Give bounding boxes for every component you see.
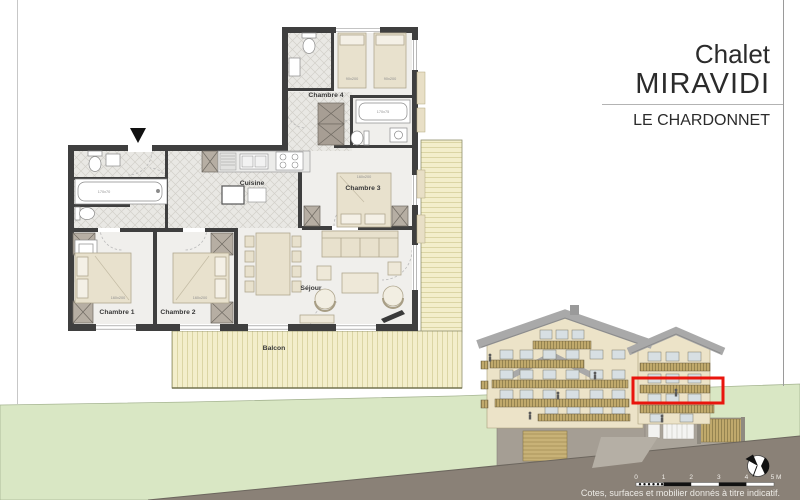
title-block: Chalet MIRAVIDI <box>635 40 770 100</box>
dim-bed2: 160x200 <box>193 296 208 300</box>
chimney <box>570 305 579 315</box>
dim-bed3: 160x200 <box>357 175 372 179</box>
scale-tick: 0 <box>634 474 638 481</box>
label-balcon: Balcon <box>263 345 286 352</box>
balcony-rail <box>640 363 714 413</box>
dim-bathtub-main: 170x70 <box>98 190 110 194</box>
floor-plan: Chambre 1 Chambre 2 Chambre 3 Chambre 4 … <box>68 27 462 388</box>
label-chambre2: Chambre 2 <box>160 309 195 316</box>
dim-bed1: 160x200 <box>111 296 126 300</box>
scale-tick: 3 <box>717 474 721 481</box>
entrance-door <box>648 424 660 438</box>
label-cuisine: Cuisine <box>240 180 265 187</box>
page-border-right <box>783 0 784 386</box>
page-border-left <box>17 0 18 404</box>
scale-tick: 1 <box>662 474 666 481</box>
dim-bed4a: 90x200 <box>346 77 358 81</box>
chalet-prefix: Chalet <box>635 40 770 68</box>
entry-arrow-icon <box>130 128 146 143</box>
tv-console <box>300 315 334 323</box>
label-sejour: Séjour <box>300 285 322 292</box>
label-chambre4: Chambre 4 <box>308 92 343 99</box>
footer-disclaimer: Cotes, surfaces et mobilier donnés à tit… <box>581 488 780 498</box>
scale-tick: 5 M <box>771 474 782 481</box>
garage-door <box>523 431 567 461</box>
residence-name: LE CHARDONNET <box>633 112 770 130</box>
scale-tick: 2 <box>689 474 693 481</box>
title-divider <box>602 104 783 105</box>
chalet-name: MIRAVIDI <box>635 68 770 100</box>
bed-chambre3 <box>337 173 391 227</box>
scale-tick: 4 <box>745 474 749 481</box>
dim-bed4b: 90x200 <box>384 77 396 81</box>
plan-sheet: Chambre 1 Chambre 2 Chambre 3 Chambre 4 … <box>0 0 800 500</box>
label-chambre3: Chambre 3 <box>345 185 380 192</box>
entrance-glazing <box>663 423 694 439</box>
dim-bathtub-ch4: 170x75 <box>377 110 389 114</box>
label-chambre1: Chambre 1 <box>99 309 134 316</box>
coffee-table <box>342 273 378 293</box>
side-table <box>317 266 331 280</box>
sofa <box>322 231 398 257</box>
side-table <box>388 262 401 275</box>
